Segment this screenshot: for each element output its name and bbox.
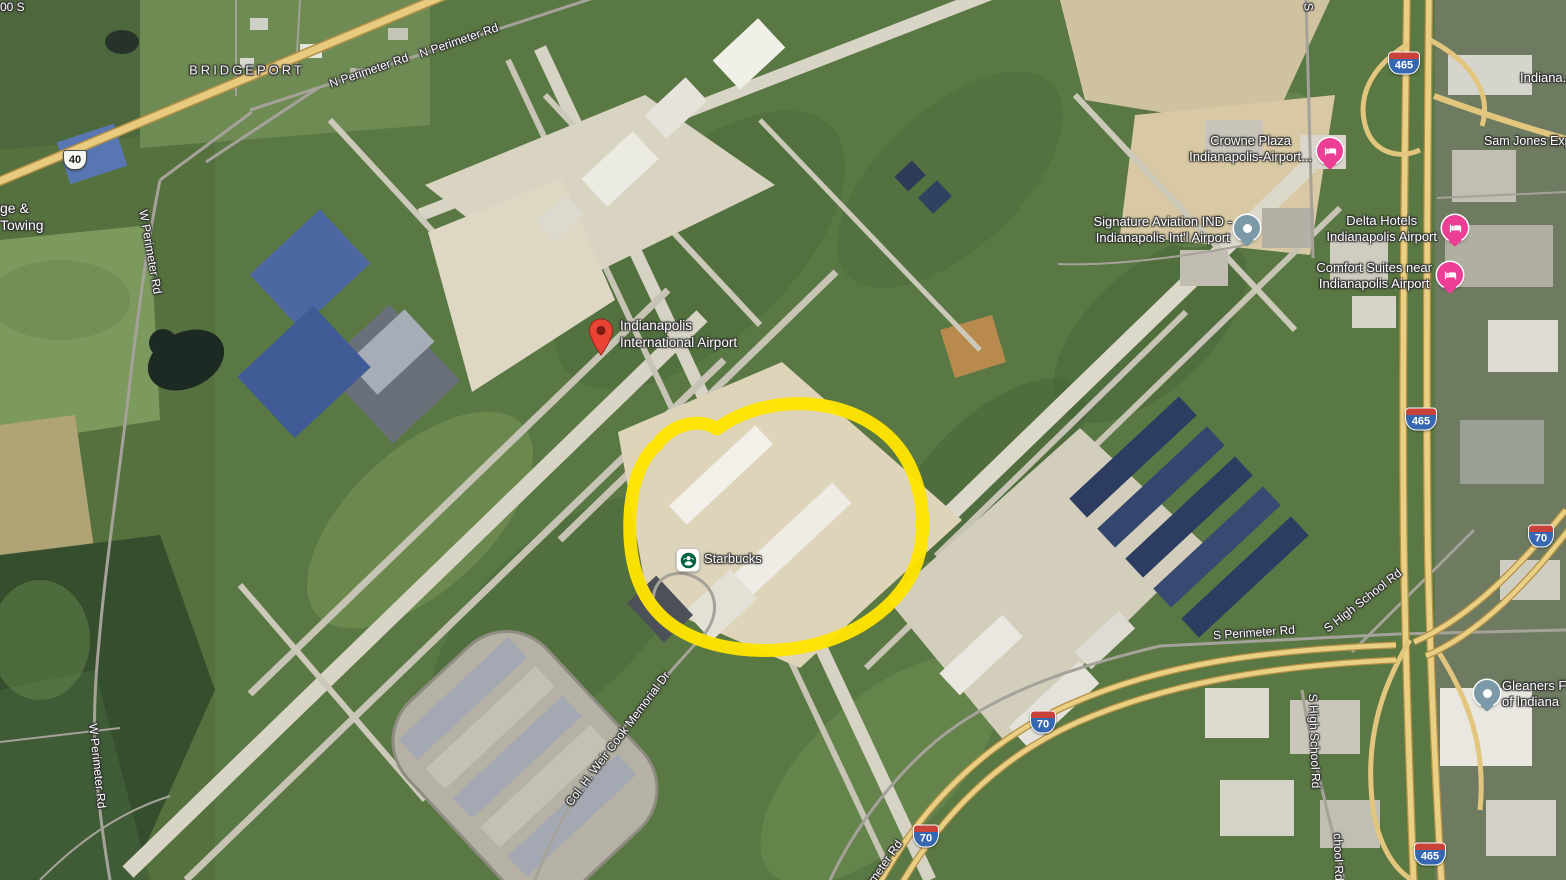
gleaners-line-1: Gleaners F bbox=[1502, 678, 1566, 694]
delta-hotels-label[interactable]: Delta Hotels Indianapolis Airport bbox=[1326, 213, 1437, 245]
crowne-plaza-label[interactable]: Crowne Plaza Indianapolis-Airport... bbox=[1189, 133, 1312, 165]
starbucks-icon[interactable] bbox=[676, 548, 700, 572]
signature-line-2: Indianapolis Int'l Airport bbox=[1094, 230, 1233, 246]
airport-label-line-1: Indianapolis bbox=[620, 317, 737, 334]
signature-line-1: Signature Aviation IND - bbox=[1094, 214, 1233, 230]
towing-line-1: ge & bbox=[0, 200, 44, 217]
i465-shield-mid: 465 bbox=[1405, 408, 1437, 431]
hotel-pin-delta[interactable] bbox=[1442, 215, 1468, 241]
bed-icon bbox=[1448, 221, 1463, 236]
starbucks-label[interactable]: Starbucks bbox=[704, 551, 762, 567]
gleaners-label[interactable]: Gleaners F of Indiana bbox=[1502, 678, 1566, 710]
i70-shield-south: 70 bbox=[913, 825, 939, 848]
poi-label-towing-partial[interactable]: ge & Towing bbox=[0, 200, 44, 234]
towing-line-2: Towing bbox=[0, 217, 44, 234]
delta-line-2: Indianapolis Airport bbox=[1326, 229, 1437, 245]
satellite-map[interactable] bbox=[0, 0, 1566, 880]
us40-shield: 40 bbox=[63, 150, 87, 170]
hotel-pin-comfort-suites[interactable] bbox=[1437, 262, 1463, 288]
crowne-line-2: Indianapolis-Airport... bbox=[1189, 149, 1312, 165]
comfort-suites-label[interactable]: Comfort Suites near Indianapolis Airport bbox=[1316, 260, 1432, 292]
crowne-line-1: Crowne Plaza bbox=[1189, 133, 1312, 149]
bed-icon bbox=[1323, 144, 1338, 159]
airport-label[interactable]: Indianapolis International Airport bbox=[620, 317, 737, 351]
delta-line-1: Delta Hotels bbox=[1326, 213, 1437, 229]
i465-shield-top: 465 bbox=[1388, 52, 1420, 75]
poi-pin-gleaners[interactable] bbox=[1474, 680, 1500, 706]
road-label-s-high-school-partial: chool Rd bbox=[1330, 833, 1347, 880]
poi-pin-signature-aviation[interactable] bbox=[1234, 215, 1260, 241]
airport-place-pin[interactable] bbox=[588, 318, 614, 361]
bed-icon bbox=[1443, 268, 1458, 283]
i70-shield-arc: 70 bbox=[1030, 711, 1056, 734]
hotel-pin-crowne-plaza[interactable] bbox=[1317, 138, 1343, 164]
gleaners-line-2: of Indiana bbox=[1502, 694, 1566, 710]
starbucks-logo-icon bbox=[680, 552, 697, 569]
airport-label-line-2: International Airport bbox=[620, 334, 737, 351]
comfort-line-2: Indianapolis Airport bbox=[1316, 276, 1432, 292]
map-viewport[interactable]: 00 S BRIDGEPORT N Perimeter Rd N Perimet… bbox=[0, 0, 1566, 880]
road-label-partial-00s: 00 S bbox=[0, 0, 25, 15]
signature-aviation-label[interactable]: Signature Aviation IND - Indianapolis In… bbox=[1094, 214, 1233, 246]
road-label-sam-jones: Sam Jones Exp... bbox=[1484, 134, 1566, 149]
comfort-line-1: Comfort Suites near bbox=[1316, 260, 1432, 276]
town-label-bridgeport: BRIDGEPORT bbox=[189, 63, 305, 78]
i70-shield-northeast: 70 bbox=[1528, 525, 1554, 548]
label-indiana-partial: Indiana... bbox=[1520, 70, 1566, 86]
road-label-s-partial: S bbox=[1300, 2, 1316, 11]
i465-shield-bottom: 465 bbox=[1414, 843, 1446, 866]
red-pin-icon bbox=[588, 318, 614, 356]
